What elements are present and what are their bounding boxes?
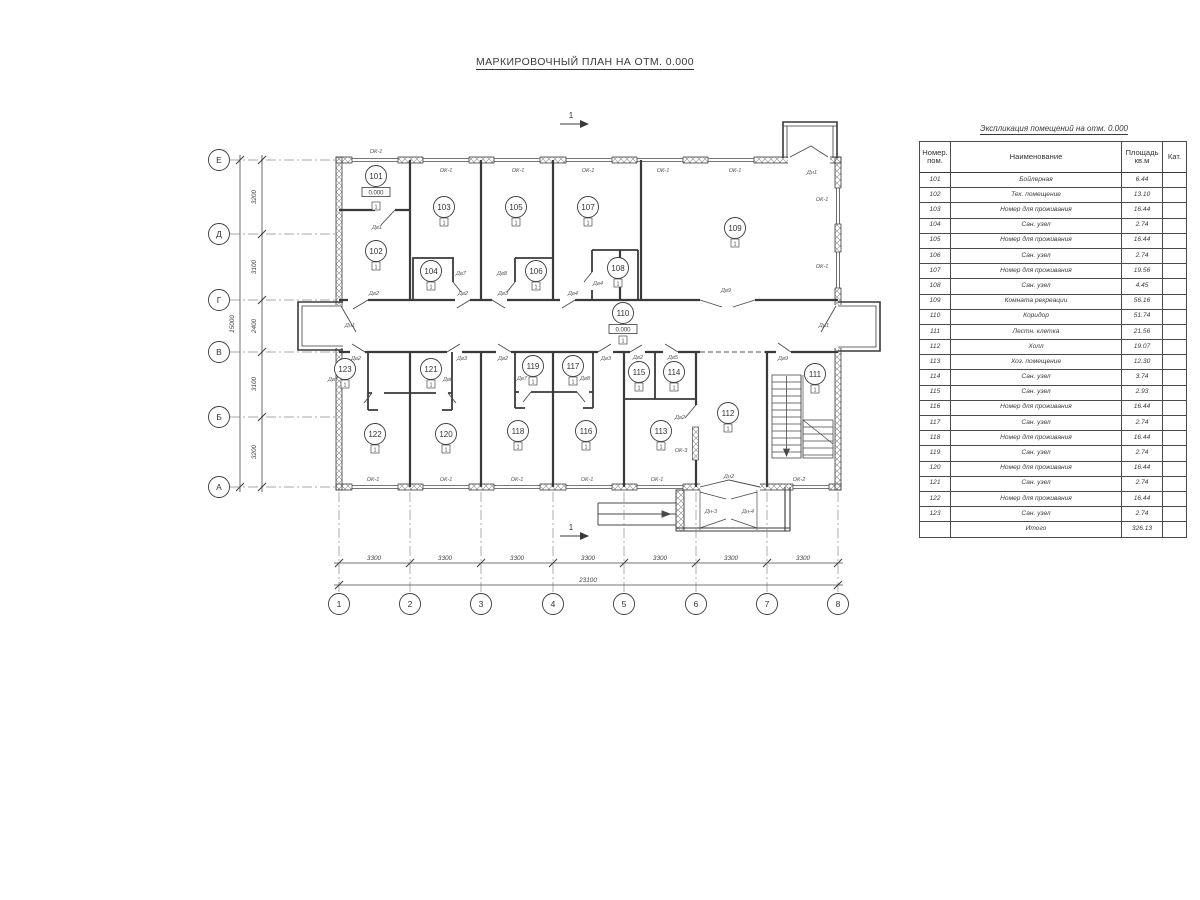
- svg-text:1: 1: [569, 111, 574, 120]
- room-number-label: 105: [509, 203, 523, 212]
- room-number-label: 120: [439, 430, 453, 439]
- room-number-label: 116: [580, 427, 593, 436]
- table-row: 120Номер для проживания16.44: [920, 461, 1187, 476]
- room-number-label: 110: [617, 309, 630, 318]
- window-tag: ОК-3: [675, 448, 689, 454]
- window-tag: ОК-1: [816, 264, 829, 270]
- door-tag: Дв3: [600, 356, 612, 362]
- dim-label: 3300: [796, 555, 811, 562]
- axis-row-label: А: [216, 482, 222, 492]
- table-row: 111Лестн. клетка21.56: [920, 324, 1187, 339]
- axis-row-label: Д: [216, 229, 222, 239]
- door-tag: Дв5: [667, 355, 679, 361]
- table-row: 112Холл19.07: [920, 340, 1187, 355]
- axis-col-label: 1: [337, 599, 342, 609]
- door-tag: Дв4: [592, 281, 603, 287]
- dim-label: 3200: [251, 444, 258, 459]
- axis-col-label: 6: [694, 599, 699, 609]
- level-mark: 0.000: [615, 328, 631, 334]
- table-row: 114Сан. узел3.74: [920, 370, 1187, 385]
- door-tag: Дв8: [496, 271, 508, 277]
- door-tag: Дв3: [497, 291, 509, 297]
- svg-text:1: 1: [569, 523, 574, 532]
- room-marks: 101 102 103 104 105 106 107 108 109 110 …: [335, 166, 826, 454]
- table-row: 118Номер для проживания16.44: [920, 431, 1187, 446]
- svg-text:1: 1: [814, 388, 817, 394]
- window-tag: ОК-1: [582, 168, 595, 174]
- total-label: Итого: [951, 522, 1122, 537]
- svg-text:1: 1: [585, 445, 588, 451]
- svg-text:1: 1: [375, 265, 378, 271]
- total-value: 326.13: [1122, 522, 1163, 537]
- room-number-label: 108: [611, 264, 625, 273]
- door-tag: Дв9: [720, 288, 731, 294]
- door-tag: Дн-4: [741, 509, 754, 515]
- room-number-label: 119: [527, 362, 540, 371]
- table-row: 101Бойлерная6.44: [920, 173, 1187, 188]
- room-number-label: 101: [369, 172, 383, 181]
- dim-label: 3300: [438, 555, 453, 562]
- door-tag: Дв3: [456, 356, 468, 362]
- svg-text:1: 1: [660, 445, 663, 451]
- window-tag: ОК-1: [651, 477, 664, 483]
- svg-text:1: 1: [587, 221, 590, 227]
- room-schedule-table: Номер. пом. Наименование Площадь кв.м Ка…: [919, 141, 1187, 538]
- door-tag: Дв2: [674, 415, 686, 421]
- dim-total-label: 15000: [229, 315, 236, 333]
- dim-label: 3300: [367, 555, 382, 562]
- table-row: 108Сан. узел4.45: [920, 279, 1187, 294]
- room-number-label: 122: [368, 430, 382, 439]
- entrance-vestibule: [676, 487, 790, 531]
- table-row: 102Тех. помещение13.10: [920, 188, 1187, 203]
- section-mark: 1 1: [560, 111, 589, 540]
- room-number-label: 123: [338, 365, 352, 374]
- dim-label: 3300: [581, 555, 596, 562]
- svg-text:1: 1: [443, 221, 446, 227]
- col-header-cat: Кат.: [1163, 142, 1187, 173]
- room-number-label: 102: [369, 247, 383, 256]
- table-row: 107Номер для проживания19.56: [920, 264, 1187, 279]
- table-row: 104Сан. узел2.74: [920, 218, 1187, 233]
- table-row: 122Номер для проживания16.44: [920, 491, 1187, 506]
- room-number-label: 109: [728, 224, 742, 233]
- svg-text:1: 1: [638, 386, 641, 392]
- window-tag: ОК-1: [657, 168, 670, 174]
- table-row: 109Комната рекреации56.16: [920, 294, 1187, 309]
- window-tag: ОК-1: [440, 477, 453, 483]
- door-tag: Дв2: [632, 355, 644, 361]
- axis-col-label: 2: [408, 599, 413, 609]
- table-row: 116Номер для проживания16.44: [920, 400, 1187, 415]
- svg-text:1: 1: [515, 221, 518, 227]
- entrance-ramp: [598, 503, 676, 525]
- svg-text:1: 1: [727, 427, 730, 433]
- door-tag: Дв8: [442, 377, 454, 383]
- room-number-label: 121: [424, 365, 438, 374]
- window-tag: ОК-1: [511, 477, 524, 483]
- axis-grid: Е Д Г В Б А 1 2 3 4 5 6 7 8 3200 3100 24: [209, 150, 849, 615]
- room-number-label: 114: [668, 368, 681, 377]
- svg-text:1: 1: [673, 386, 676, 392]
- svg-text:1: 1: [517, 445, 520, 451]
- table-total-row: Итого 326.13: [920, 522, 1187, 537]
- axis-row-label: Е: [216, 155, 222, 165]
- table-row: 110Коридор51.74: [920, 309, 1187, 324]
- room-number-label: 111: [809, 370, 822, 379]
- svg-text:1: 1: [344, 383, 347, 389]
- dim-label: 3200: [251, 189, 258, 204]
- table-row: 121Сан. узел2.74: [920, 476, 1187, 491]
- door-tag: Дн1: [806, 170, 817, 176]
- door-tag: Дн2: [723, 474, 735, 480]
- window-tag: ОК-1: [370, 149, 383, 155]
- svg-text:1: 1: [572, 380, 575, 386]
- window-tag: ОК-1: [512, 168, 525, 174]
- window-tag: ОК-1: [816, 197, 829, 203]
- table-header-row: Номер. пом. Наименование Площадь кв.м Ка…: [920, 142, 1187, 173]
- room-number-label: 113: [655, 427, 668, 436]
- axis-row-label: Г: [217, 295, 222, 305]
- table-row: 106Сан. узел2.74: [920, 248, 1187, 263]
- axis-row-label: В: [216, 347, 222, 357]
- window-tag: ОК-1: [440, 168, 453, 174]
- room-number-label: 103: [437, 203, 451, 212]
- staircase: [772, 375, 833, 458]
- drawing-sheet: МАРКИРОВОЧНЫЙ ПЛАН НА ОТМ. 0.000: [0, 0, 1200, 900]
- room-number-label: 117: [567, 362, 580, 371]
- door-tag: Дв2: [368, 291, 380, 297]
- dim-label: 2400: [251, 318, 258, 334]
- axis-col-label: 5: [622, 599, 627, 609]
- axis-col-label: 7: [765, 599, 770, 609]
- svg-text:1: 1: [430, 285, 433, 291]
- svg-text:1: 1: [535, 285, 538, 291]
- door-tag: Дн1: [818, 323, 829, 329]
- room-number-label: 107: [581, 203, 595, 212]
- level-mark: 0.000: [368, 191, 384, 197]
- dim-label: 3300: [510, 555, 525, 562]
- door-tag: Дв9: [777, 356, 788, 362]
- door-tag: Дв1: [371, 225, 382, 231]
- table-row: 113Хоз. помещение12.30: [920, 355, 1187, 370]
- table-row: 105Номер для проживания16.44: [920, 233, 1187, 248]
- door-tag: Дв7: [516, 376, 528, 382]
- room-number-label: 106: [529, 267, 543, 276]
- svg-text:1: 1: [617, 282, 620, 288]
- svg-text:1: 1: [532, 380, 535, 386]
- door-tag: Дв2: [497, 356, 509, 362]
- dim-label: 3300: [653, 555, 668, 562]
- dim-label: 3100: [251, 259, 258, 274]
- svg-text:1: 1: [622, 339, 625, 345]
- svg-text:1: 1: [374, 448, 377, 454]
- axis-col-label: 8: [836, 599, 841, 609]
- col-header-name: Наименование: [951, 142, 1122, 173]
- axis-col-label: 3: [479, 599, 484, 609]
- dim-label: 3300: [724, 555, 739, 562]
- window-tag: ОК-1: [729, 168, 742, 174]
- room-number-label: 104: [424, 267, 438, 276]
- svg-text:1: 1: [734, 242, 737, 248]
- col-header-number: Номер. пом.: [920, 142, 951, 173]
- room-number-label: 112: [722, 409, 735, 418]
- door-tag: Дв2: [457, 291, 469, 297]
- table-row: 117Сан. узел2.74: [920, 416, 1187, 431]
- svg-text:1: 1: [445, 448, 448, 454]
- door-tag: Дв4: [567, 291, 578, 297]
- door-tag: Дв7: [327, 377, 339, 383]
- table-row: 115Сан. узел2.93: [920, 385, 1187, 400]
- axis-col-label: 4: [551, 599, 556, 609]
- table-row: 123Сан. узел2.74: [920, 507, 1187, 522]
- dim-label: 3100: [251, 376, 258, 391]
- room-number-label: 118: [512, 427, 525, 436]
- room-number-label: 115: [633, 368, 646, 377]
- window-tag: ОК-1: [367, 477, 380, 483]
- col-header-area: Площадь кв.м: [1122, 142, 1163, 173]
- table-row: 119Сан. узел2.74: [920, 446, 1187, 461]
- door-tag: Дн1: [344, 323, 355, 329]
- table-row: 103Номер для проживания16.44: [920, 203, 1187, 218]
- door-tag: Дв7: [455, 271, 467, 277]
- dim-total-label: 23100: [578, 577, 597, 584]
- window-tag: ОК-1: [581, 477, 594, 483]
- table-title: Экспликация помещений на отм. 0.000: [918, 124, 1190, 133]
- door-tag: Дн-3: [704, 509, 718, 515]
- floor-type-marker: 11 11 11 11 11 11 11 11 11 11 11 1: [344, 205, 817, 454]
- svg-text:1: 1: [430, 383, 433, 389]
- window-tag: ОК-2: [793, 477, 807, 483]
- axis-row-label: Б: [216, 412, 222, 422]
- door-tag: Дв8: [579, 376, 591, 382]
- svg-text:1: 1: [375, 205, 378, 211]
